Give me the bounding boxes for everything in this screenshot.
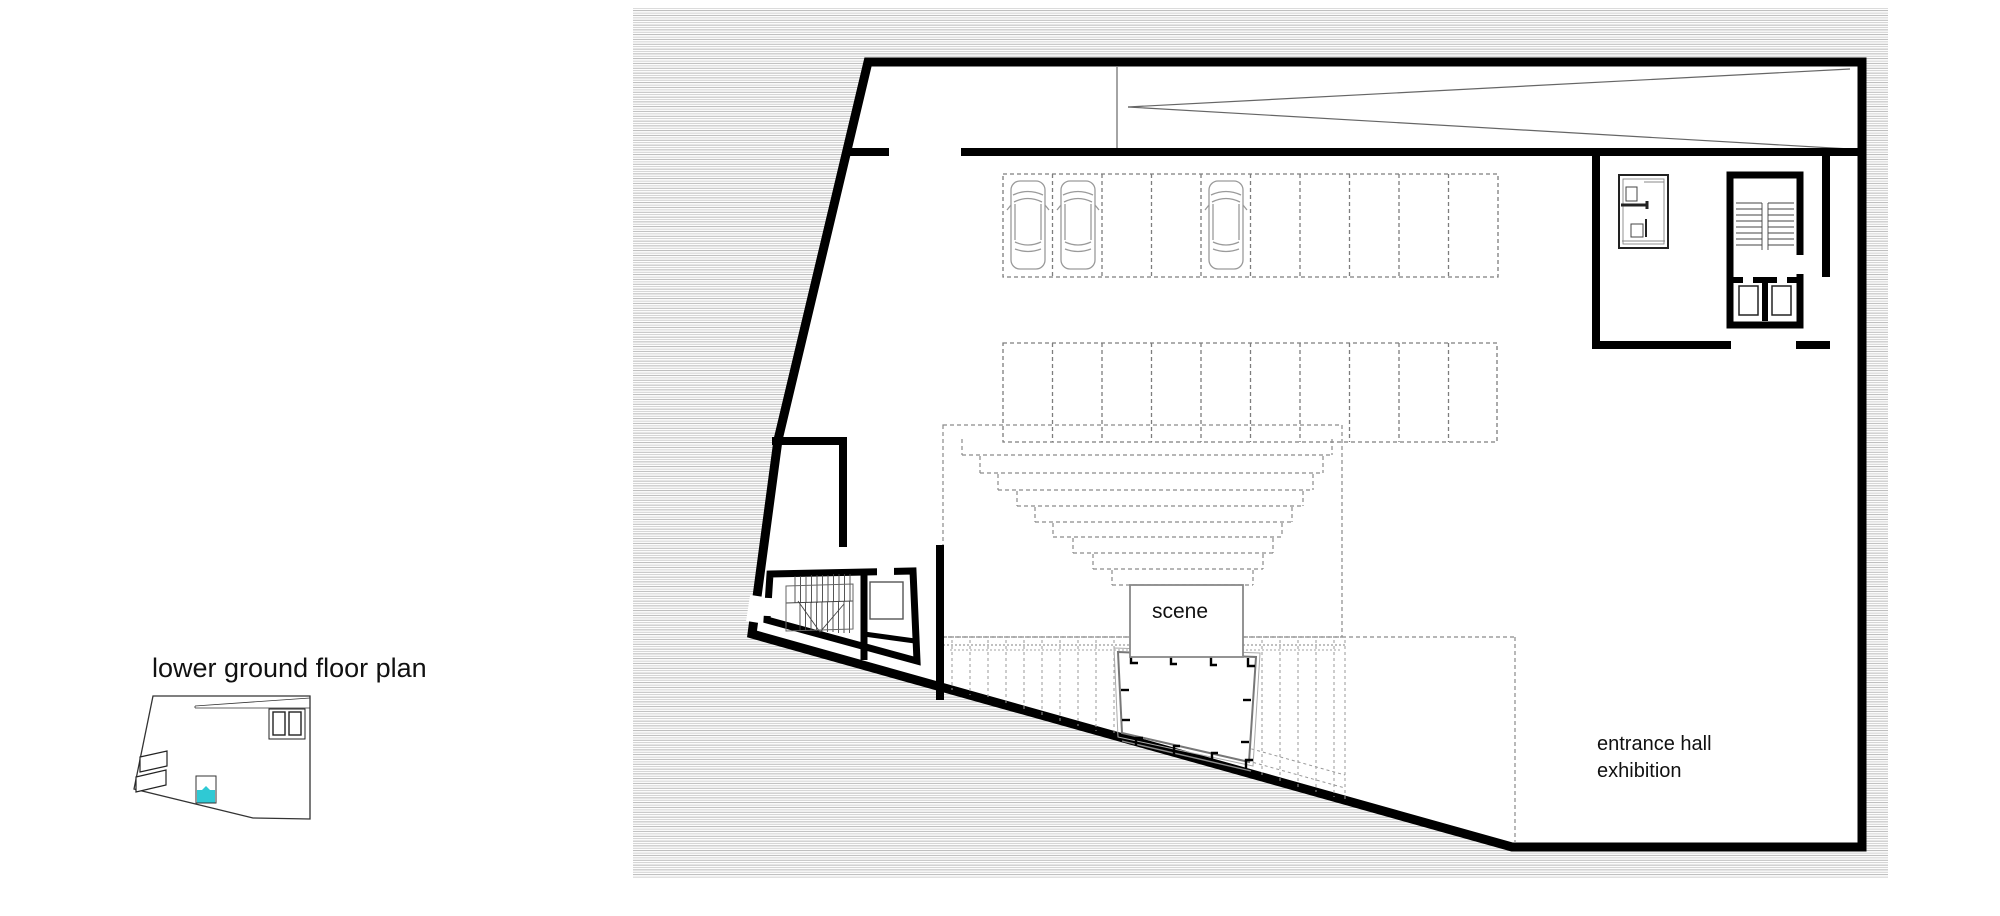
key-plan-elevators <box>269 709 305 739</box>
scene-box: scene <box>1130 585 1243 657</box>
floor-plan-canvas: scene <box>0 0 2000 916</box>
entrance-hall-label-line2: exhibition <box>1597 760 1682 782</box>
key-plan: lower ground floor plan <box>134 653 427 819</box>
entrance-hall-label-line1: entrance hall <box>1597 733 1712 755</box>
highlight-marker <box>197 790 215 803</box>
key-plan-highlight <box>196 776 216 803</box>
scene-label: scene <box>1152 600 1208 623</box>
floor-plan-page: scene <box>0 0 2000 916</box>
key-plan-title: lower ground floor plan <box>152 653 427 683</box>
